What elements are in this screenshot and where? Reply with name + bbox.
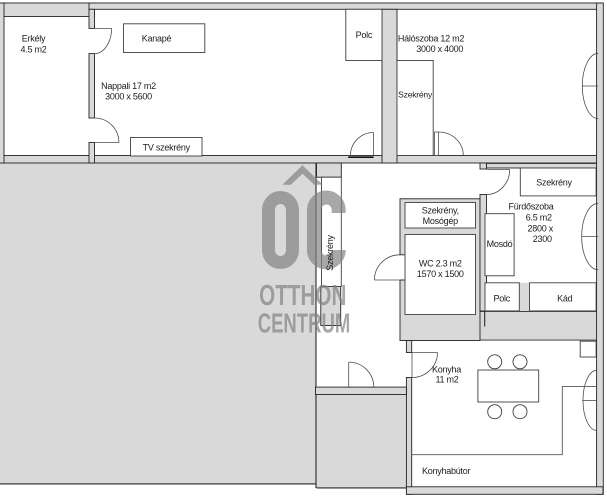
svg-text:1570 x 1500: 1570 x 1500: [417, 269, 464, 279]
svg-text:Erkély: Erkély: [22, 34, 46, 44]
svg-text:6.5 m2: 6.5 m2: [526, 213, 552, 223]
svg-text:Mosdó: Mosdó: [487, 239, 513, 249]
svg-text:3000 x 5600: 3000 x 5600: [105, 92, 152, 102]
svg-text:Konyhabútor: Konyhabútor: [422, 466, 471, 476]
svg-text:Mosógép: Mosógép: [423, 216, 459, 226]
svg-text:11 m2: 11 m2: [435, 374, 458, 384]
svg-text:Szekrény,: Szekrény,: [422, 205, 459, 215]
svg-text:Kád: Kád: [557, 293, 573, 303]
svg-text:Nappali 17 m2: Nappali 17 m2: [101, 81, 156, 91]
svg-text:Konyha: Konyha: [432, 365, 461, 375]
svg-text:2300: 2300: [533, 234, 552, 244]
svg-text:TV szekrény: TV szekrény: [143, 143, 191, 153]
svg-text:Szekrény: Szekrény: [398, 89, 433, 99]
svg-text:2800 x: 2800 x: [528, 223, 554, 233]
svg-text:Polc: Polc: [356, 30, 373, 40]
svg-text:Fürdőszoba: Fürdőszoba: [508, 202, 553, 212]
svg-text:CENTRUM: CENTRUM: [258, 308, 351, 340]
svg-text:Szekrény: Szekrény: [325, 234, 335, 270]
svg-text:Hálószoba 12 m2: Hálószoba 12 m2: [398, 33, 465, 43]
svg-text:4.5 m2: 4.5 m2: [20, 45, 46, 55]
svg-text:Szekrény: Szekrény: [536, 177, 572, 187]
svg-text:Kanapé: Kanapé: [142, 33, 172, 43]
svg-text:WC 2.3 m2: WC 2.3 m2: [419, 259, 462, 269]
svg-text:3000 x 4000: 3000 x 4000: [416, 44, 463, 54]
svg-text:Polc: Polc: [493, 293, 510, 303]
